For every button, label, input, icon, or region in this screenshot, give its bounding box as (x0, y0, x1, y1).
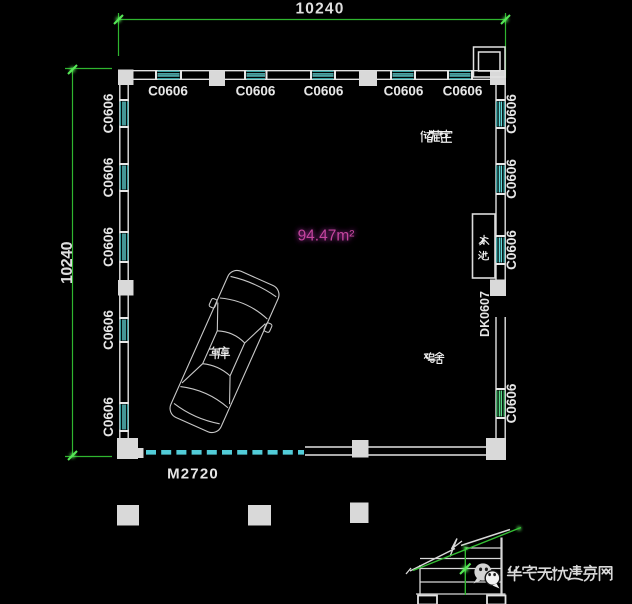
svg-text:10240: 10240 (295, 1, 344, 18)
svg-text:C0606: C0606 (304, 84, 344, 99)
svg-text:C0606: C0606 (236, 84, 276, 99)
svg-text:C0606: C0606 (504, 94, 519, 134)
svg-text:M2720: M2720 (167, 466, 219, 483)
svg-text:C0606: C0606 (101, 227, 116, 267)
svg-text:C0606: C0606 (101, 93, 116, 133)
svg-text:DK0607: DK0607 (478, 291, 492, 337)
svg-text:C0606: C0606 (443, 84, 483, 99)
svg-text:C0606: C0606 (101, 310, 116, 350)
svg-text:94.47m²: 94.47m² (298, 228, 355, 245)
svg-text:C0606: C0606 (101, 397, 116, 437)
svg-text:C0606: C0606 (504, 230, 519, 270)
svg-text:C0606: C0606 (148, 84, 188, 99)
svg-text:10240: 10240 (59, 241, 76, 284)
svg-text:C0606: C0606 (504, 383, 519, 423)
svg-text:C0606: C0606 (384, 84, 424, 99)
svg-text:C0606: C0606 (504, 159, 519, 199)
svg-text:C0606: C0606 (101, 157, 116, 197)
